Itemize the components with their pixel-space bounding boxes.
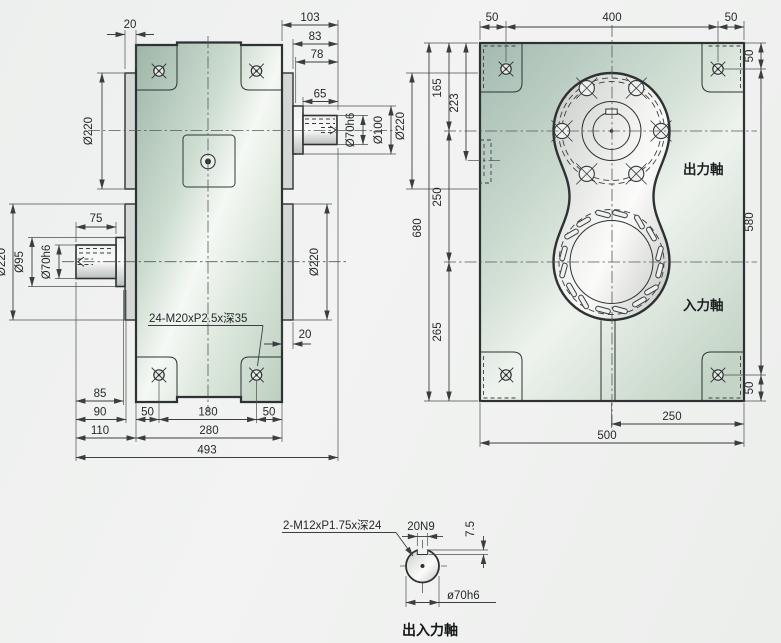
dim-165: 165 [432, 78, 444, 97]
dia-70h6-output: Ø70h6 [345, 113, 357, 148]
key-depth: 7.5 [465, 521, 477, 537]
output-shaft [293, 106, 337, 154]
dia-220-front: Ø220 [395, 112, 407, 140]
dim-493: 493 [197, 445, 216, 457]
tap-hole-center [421, 564, 425, 568]
dim-250-bottom: 250 [662, 411, 681, 423]
dim-280: 280 [199, 425, 218, 437]
shaft-detail-view: 20N9 7.5 ø70h6 2-M12xP1.75x深24 出入力軸 [282, 518, 496, 638]
dia-100-output: Ø100 [373, 116, 385, 144]
dim-400: 400 [602, 12, 621, 24]
dim-223: 223 [449, 93, 461, 112]
dim-180: 180 [198, 407, 217, 419]
dim-20-bottom: 20 [299, 329, 312, 341]
dim-65: 65 [314, 89, 327, 101]
dim-83: 83 [309, 31, 322, 43]
dim-110: 110 [91, 425, 109, 437]
dia-220-input-right: Ø220 [309, 248, 321, 276]
keyway [606, 109, 617, 114]
output-shaft-label: 出力軸 [683, 161, 724, 177]
dim-103: 103 [300, 12, 319, 24]
dim-580: 580 [744, 212, 756, 231]
dia-220-input-left: Ø220 [0, 248, 8, 276]
dim-50-left: 50 [141, 407, 154, 419]
dim-265: 265 [432, 322, 444, 341]
input-shaft-label: 入力軸 [683, 297, 724, 313]
dim-50-right-bottom: 50 [744, 382, 756, 395]
dim-85: 85 [94, 388, 107, 400]
thread-note-side: 24-M20xP2.5x深35 [149, 311, 247, 325]
detail-caption: 出入力軸 [402, 622, 458, 638]
dim-500: 500 [597, 430, 616, 442]
side-view [76, 43, 337, 403]
dim-50-top-right: 50 [725, 12, 738, 24]
keyway-mask [418, 548, 428, 554]
detail-shaft-dia: ø70h6 [447, 590, 480, 602]
technical-drawing: 出力軸 入力軸 20 103 83 78 65 [0, 0, 781, 643]
dia-70h6-input: Ø70h6 [41, 245, 53, 280]
dim-90: 90 [94, 407, 107, 419]
dim-680: 680 [412, 218, 424, 237]
dim-78: 78 [311, 49, 324, 61]
dim-50-right: 50 [263, 407, 276, 419]
dim-75: 75 [90, 213, 103, 225]
dia-95-input: Ø95 [14, 251, 26, 273]
dim-50-top-left: 50 [486, 12, 499, 24]
thread-note-detail: 2-M12xP1.75x深24 [283, 518, 382, 532]
key-width: 20N9 [407, 521, 435, 533]
dim-20-top: 20 [124, 19, 137, 31]
dim-50-right-top: 50 [744, 50, 756, 63]
dia-220-output: Ø220 [83, 117, 95, 145]
dim-250-left: 250 [432, 187, 444, 206]
